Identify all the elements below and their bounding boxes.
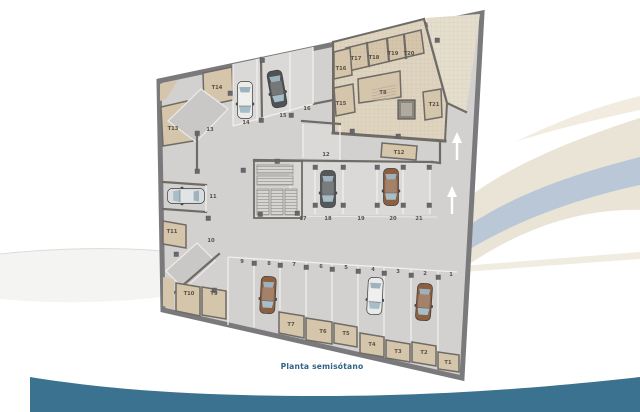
storage-room-label: T10 [184,291,195,297]
parking-spot-label: 17 [299,216,307,222]
storage-room-label: T16 [336,66,347,72]
storage-room-label: T13 [168,126,179,132]
cage-cell [271,189,283,215]
parking-spot-label: 10 [207,238,215,244]
elevator-cab [401,103,412,116]
storage-room-label: T6 [319,329,327,335]
car-spot-4 [365,277,385,315]
room-t10 [176,283,200,316]
storage-room-label: T7 [287,322,295,328]
storage-zone-left-wall [333,42,334,133]
parking-spot-label: 3 [396,269,400,275]
storage-room-label: T21 [429,102,440,108]
car-spot-8 [258,276,278,314]
car-spot-18 [319,171,337,208]
storage-room-label: T4 [368,342,376,348]
cage-rack [257,176,293,185]
parking-spot-label: 7 [292,262,296,268]
car-spot-14 [236,82,254,119]
parking-spot-label: 13 [206,127,214,133]
swoosh-cream-thin-band [462,252,640,272]
cage-rack [257,165,293,174]
parking-spot-label: 2 [423,271,427,277]
car-spot-20 [382,169,400,206]
parking-spot-label: 8 [267,261,271,267]
parking-spot-label: 6 [319,264,323,270]
storage-room-label: T14 [212,85,223,91]
storage-room-label: T1 [444,360,452,366]
room-t16 [334,48,352,79]
storage-room-label: T17 [351,56,362,62]
parking-spot-label: 5 [344,265,348,271]
cage-cell [257,189,269,215]
swoosh-left-band [0,249,162,303]
parking-spot-label: 18 [324,216,332,222]
storage-room-label: T15 [336,101,347,107]
storage-room-label: T18 [369,55,380,61]
parking-spot-label: 4 [371,267,375,273]
storage-room-label: T20 [404,51,415,57]
storage-room-label: T11 [167,229,178,235]
storage-room-label: T19 [388,51,399,57]
storage-room-label: T9 [210,291,218,297]
parking-spot-label: 20 [389,216,397,222]
parking-spot-label: 21 [415,216,423,222]
page-title: Planta semisótano [281,362,364,371]
storage-room-label: T12 [394,150,405,156]
floor-plan-rendering: 1 2 3 4 5 6 7 8 9 10 11 12 13 14 15 16 1… [0,0,640,412]
car-spot-11 [168,187,205,205]
middle-row-spot-floor [290,163,430,215]
parking-spot-label: 12 [322,152,330,158]
room-left-wedge [163,277,174,309]
parking-spot-label: 9 [240,259,244,265]
storage-room-label: T8 [379,90,387,96]
parking-spot-label: 19 [357,216,365,222]
storage-room-label: T3 [394,349,402,355]
storage-room-label: T2 [420,350,428,356]
parking-spot-label: 16 [303,106,311,112]
building: 1 2 3 4 5 6 7 8 9 10 11 12 13 14 15 16 1… [159,13,482,378]
parking-spot-label: 1 [449,272,453,278]
swoosh-teal-band [30,377,640,412]
storage-room-label: T5 [342,331,350,337]
screenshot: 1 2 3 4 5 6 7 8 9 10 11 12 13 14 15 16 1… [0,0,640,412]
parking-spot-label: 14 [242,120,250,126]
spot-divider-wall [261,58,262,120]
parking-spot-label: 11 [209,194,217,200]
room-t15 [334,84,355,116]
parking-spot-label: 15 [279,113,287,119]
